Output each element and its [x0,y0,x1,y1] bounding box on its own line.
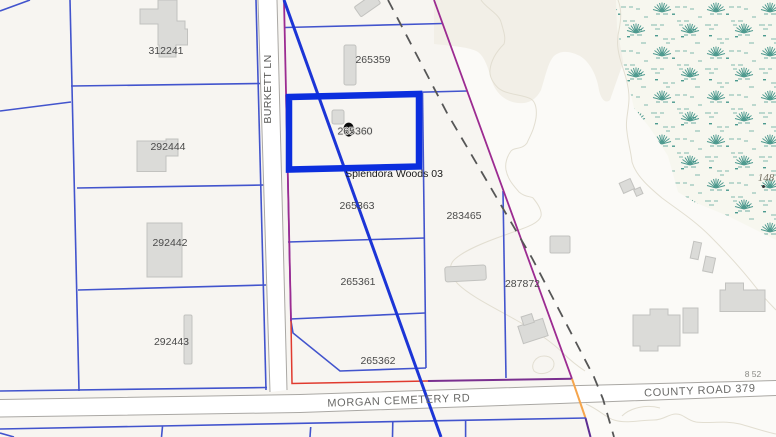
svg-text:292442: 292442 [152,237,187,249]
svg-text:265359: 265359 [355,54,390,66]
svg-text:265361: 265361 [340,276,375,288]
svg-text:292443: 292443 [154,336,189,348]
svg-text:265362: 265362 [360,355,395,367]
svg-text:8 52: 8 52 [745,369,762,379]
svg-text:292444: 292444 [150,141,185,153]
svg-text:148: 148 [758,172,775,184]
svg-text:265360: 265360 [337,126,372,138]
svg-text:265363: 265363 [339,200,374,212]
svg-text:BURKETT LN: BURKETT LN [262,54,274,123]
svg-text:287872: 287872 [505,278,540,290]
svg-text:312241: 312241 [148,45,183,57]
svg-text:283465: 283465 [446,210,481,222]
